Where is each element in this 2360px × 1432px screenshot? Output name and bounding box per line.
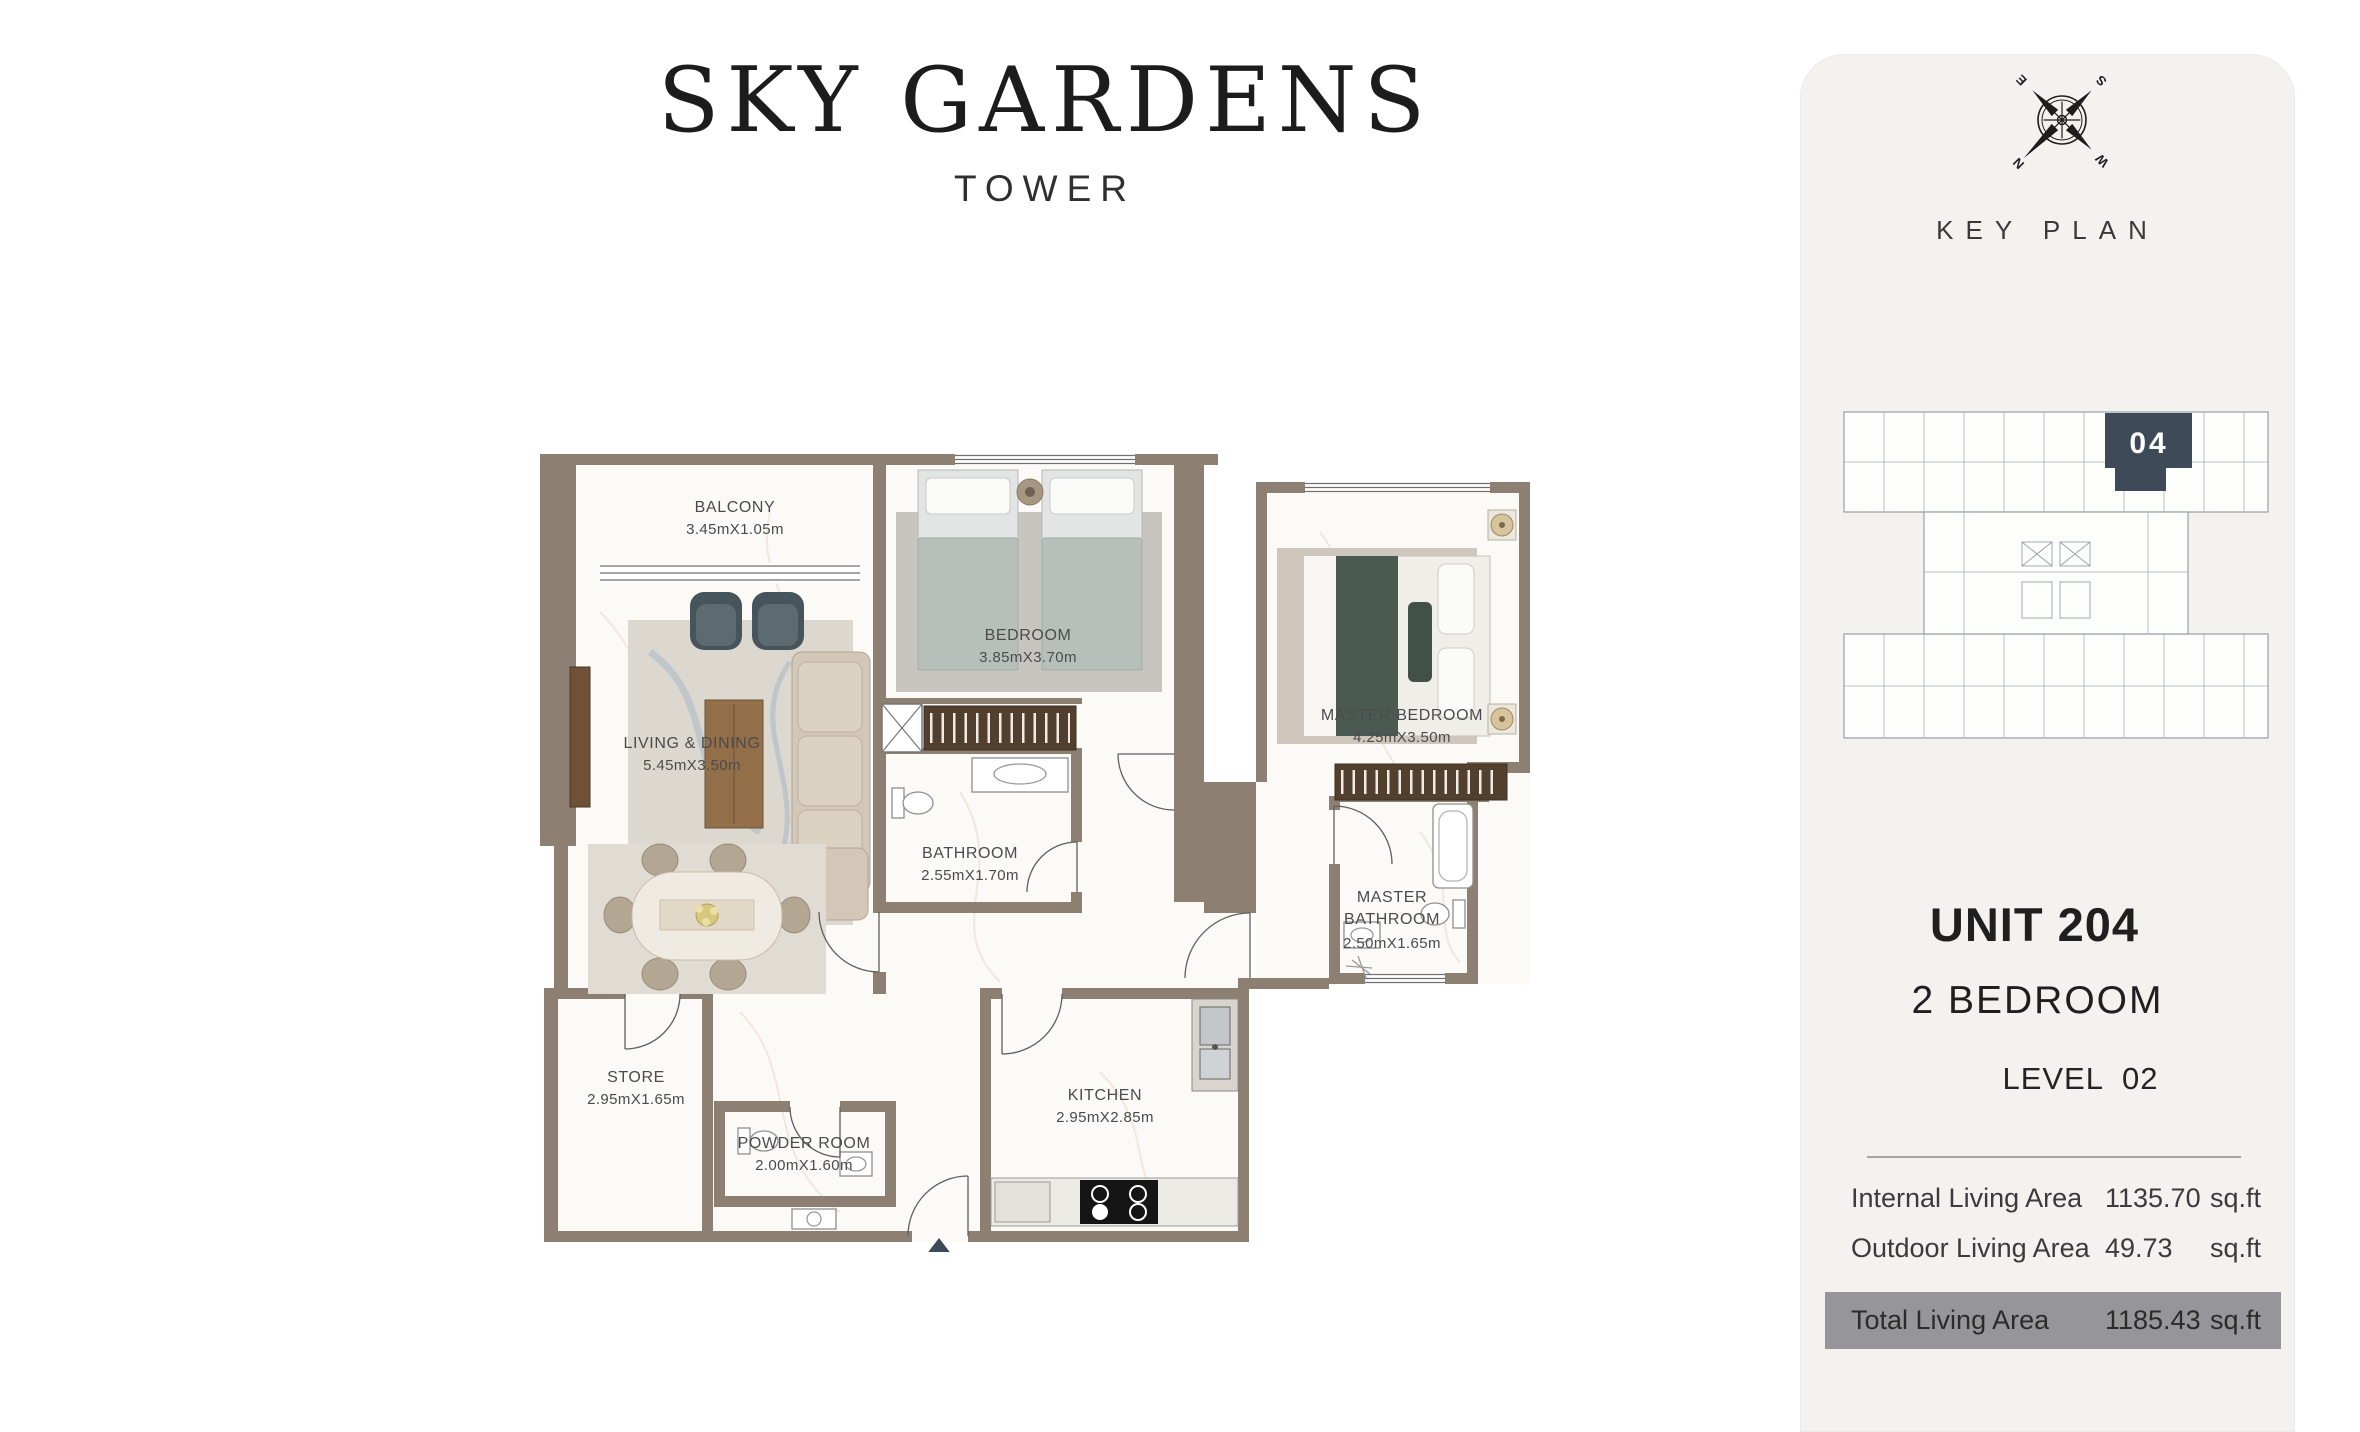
compass-s: S	[2093, 72, 2110, 89]
compass-e: E	[2013, 71, 2030, 88]
compass-w: W	[2092, 151, 2112, 171]
dims-balcony: 3.45mX1.05m	[686, 521, 784, 538]
master-wardrobe	[1335, 764, 1507, 800]
area-unit: sq.ft	[2210, 1233, 2261, 1264]
label-balcony: BALCONY	[695, 499, 776, 516]
area-value: 49.73	[2105, 1233, 2173, 1264]
area-row-total: Total Living Area 1185.43 sq.ft	[1825, 1292, 2281, 1349]
area-value: 1185.43	[2105, 1305, 2201, 1336]
floor-plan: BALCONY 3.45mX1.05m LIVING & DINING 5.45…	[540, 452, 1530, 1252]
label-powder: POWDER ROOM	[738, 1135, 871, 1152]
label-bathroom: BATHROOM	[922, 845, 1018, 862]
page: SKY GARDENS TOWER	[0, 0, 2360, 1432]
dims-master-bedroom: 4.25mX3.50m	[1353, 729, 1451, 746]
label-master-bathroom-2: BATHROOM	[1344, 911, 1440, 928]
compass-icon: N S E W	[1997, 55, 2127, 185]
dims-bedroom: 3.85mX3.70m	[979, 649, 1077, 666]
dims-powder: 2.00mX1.60m	[755, 1157, 853, 1174]
key-plan-panel: N S E W KEY PLAN	[1800, 54, 2295, 1432]
area-value: 1135.70	[2105, 1183, 2201, 1214]
dims-master-bathroom: 2.50mX1.65m	[1343, 935, 1441, 952]
area-label: Total Living Area	[1851, 1305, 2049, 1336]
page-subtitle: TOWER	[540, 168, 1550, 210]
area-label: Outdoor Living Area	[1851, 1233, 2090, 1264]
shaft-box	[882, 704, 922, 752]
label-master-bedroom: MASTER BEDROOM	[1321, 707, 1483, 724]
label-store: STORE	[607, 1069, 665, 1086]
dims-store: 2.95mX1.65m	[587, 1091, 685, 1108]
area-row-internal: Internal Living Area 1135.70 sq.ft	[1801, 1183, 2294, 1219]
dims-bathroom: 2.55mX1.70m	[921, 867, 1019, 884]
key-plan-title: KEY PLAN	[1801, 215, 2294, 246]
dining-furniture	[588, 844, 826, 994]
area-row-outdoor: Outdoor Living Area 49.73 sq.ft	[1801, 1233, 2294, 1269]
dims-kitchen: 2.95mX2.85m	[1056, 1109, 1154, 1126]
area-unit: sq.ft	[2210, 1305, 2261, 1336]
area-unit: sq.ft	[2210, 1183, 2261, 1214]
divider-line	[1867, 1156, 2241, 1158]
label-bedroom: BEDROOM	[985, 627, 1072, 644]
bedroom-wardrobe	[924, 706, 1076, 750]
label-master-bathroom-1: MASTER	[1357, 889, 1427, 906]
key-plan-diagram: 04	[1836, 406, 2276, 746]
unit-type: 2 BEDROOM	[1801, 979, 2294, 1023]
area-label: Internal Living Area	[1851, 1183, 2082, 1214]
page-title: SKY GARDENS	[540, 48, 1550, 153]
label-kitchen: KITCHEN	[1068, 1087, 1142, 1104]
unit-title: UNIT 204	[1801, 897, 2294, 952]
unit-level: LEVEL 02	[1801, 1061, 2294, 1097]
dims-living: 5.45mX3.50m	[643, 757, 741, 774]
label-living: LIVING & DINING	[623, 735, 760, 752]
highlighted-unit-number: 04	[2129, 427, 2168, 460]
